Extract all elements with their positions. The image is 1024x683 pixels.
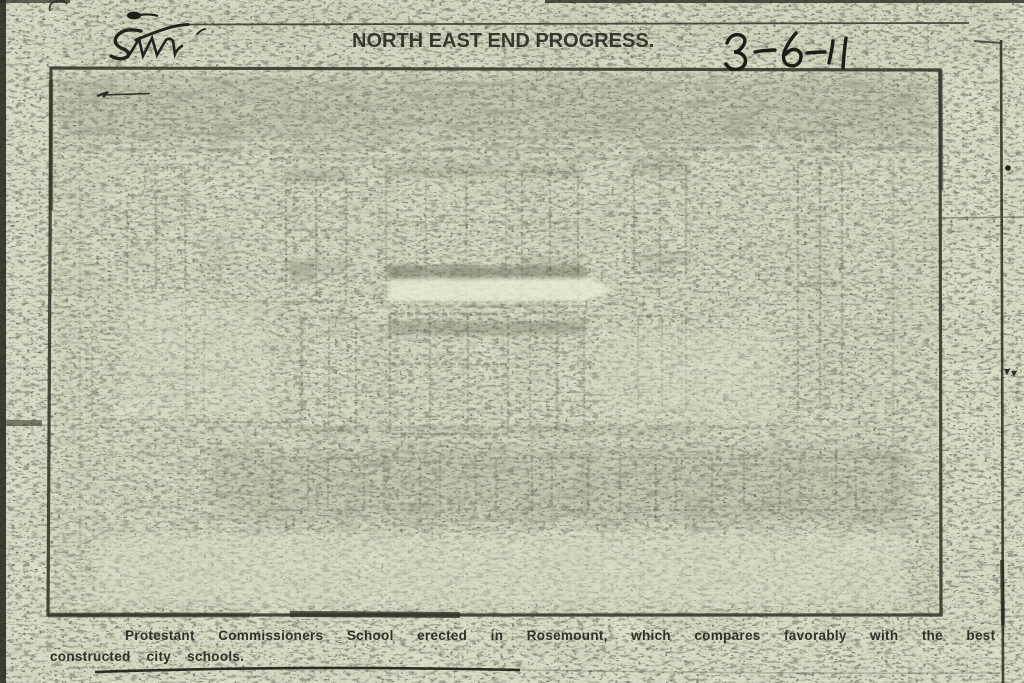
svg-text:constructed city schools.: constructed city schools. xyxy=(50,649,244,664)
svg-text:NORTH EAST END PROGRESS.: NORTH EAST END PROGRESS. xyxy=(352,30,654,52)
svg-text:Protestant Commissioners Schoo: Protestant Commissioners School erected … xyxy=(125,628,996,643)
